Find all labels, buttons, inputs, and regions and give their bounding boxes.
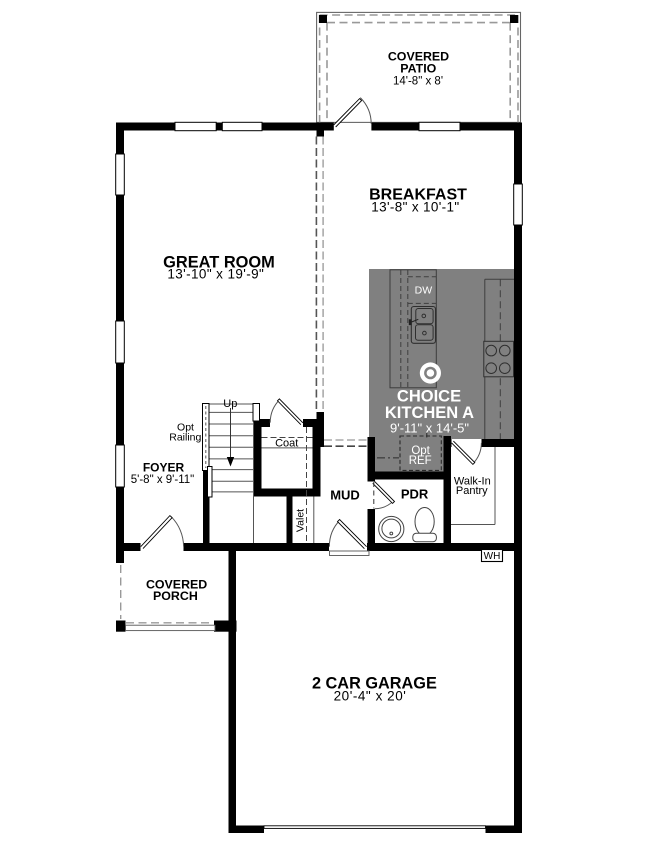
svg-text:9'-11" x 14'-5": 9'-11" x 14'-5" xyxy=(390,421,469,436)
svg-text:MUD: MUD xyxy=(330,488,360,503)
svg-text:13'-10" x 19'-9": 13'-10" x 19'-9" xyxy=(167,266,264,281)
svg-text:REF: REF xyxy=(409,455,432,467)
svg-text:FOYER: FOYER xyxy=(143,461,185,475)
svg-text:13'-8" x 10'-1": 13'-8" x 10'-1" xyxy=(371,200,459,215)
svg-text:Coat: Coat xyxy=(275,438,298,450)
svg-text:Pantry: Pantry xyxy=(456,485,488,497)
svg-text:DW: DW xyxy=(415,284,433,296)
svg-text:14'-8" x 8': 14'-8" x 8' xyxy=(393,75,443,87)
svg-text:PATIO: PATIO xyxy=(400,61,436,75)
svg-text:Railing: Railing xyxy=(169,432,201,444)
svg-text:KITCHEN A: KITCHEN A xyxy=(385,404,474,422)
svg-text:Up: Up xyxy=(223,398,237,410)
svg-text:PORCH: PORCH xyxy=(153,589,198,603)
svg-text:20'-4" x 20': 20'-4" x 20' xyxy=(334,689,407,704)
svg-text:WH: WH xyxy=(484,551,501,562)
svg-text:Valet: Valet xyxy=(294,509,306,532)
svg-text:5'-8" x 9'-11": 5'-8" x 9'-11" xyxy=(131,474,194,486)
svg-text:PDR: PDR xyxy=(401,486,429,501)
